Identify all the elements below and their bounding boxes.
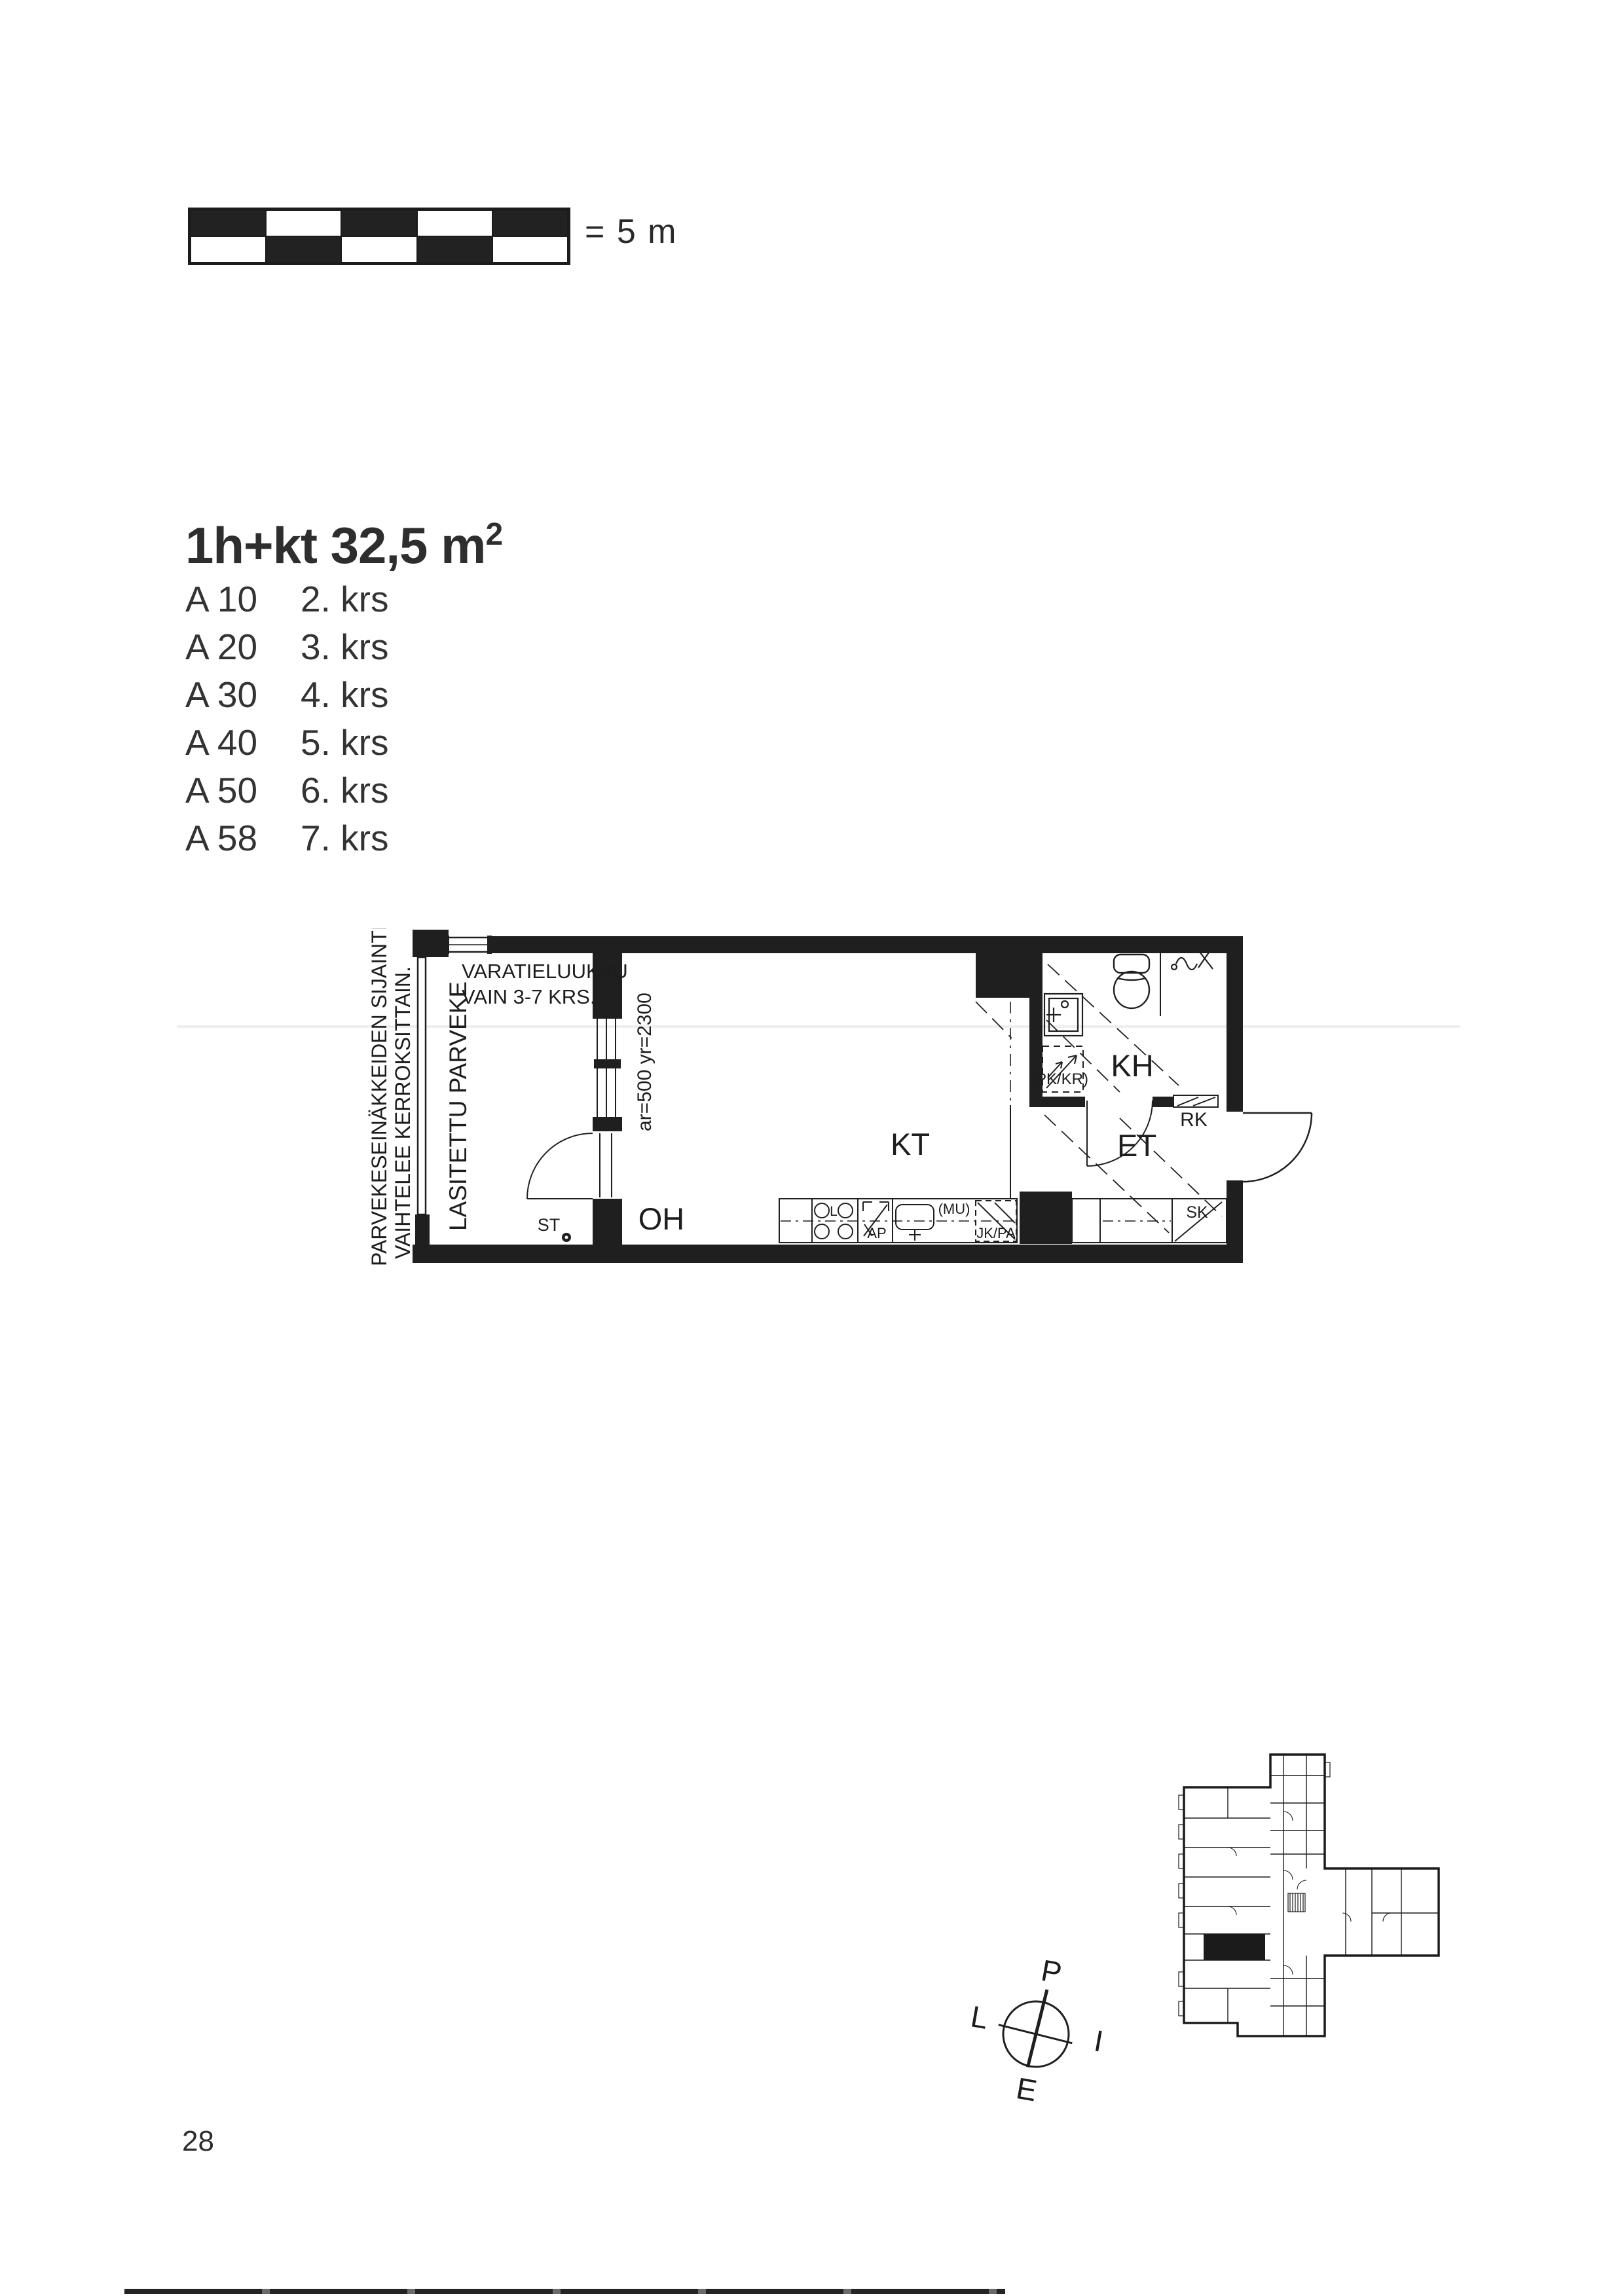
apartment-row: A 50 6. krs [185,766,388,814]
apartment-type-text: 1h+kt 32,5 m [185,517,485,574]
apartment-floor: 3. krs [301,626,388,668]
note-hatch-line1: VARATIELUUKKU [462,960,628,983]
toilet [1114,955,1149,1008]
apartment-row: A 30 4. krs [185,670,388,718]
apartment-floor: 4. krs [301,674,388,716]
scale-cell [492,236,568,263]
square-meter-sup: 2 [485,517,502,552]
apartment-code: A 50 [185,769,301,811]
room-label-oh: OH [638,1201,685,1236]
apartment-row: A 20 3. krs [185,623,388,670]
side-note-line2: VAIHTELEE KERROKSITTAIN. [391,966,415,1259]
apartment-list: A 10 2. krs A 20 3. krs A 30 4. krs A 40… [185,575,388,862]
apartment-row: A 10 2. krs [185,575,388,623]
scale-cell [191,210,266,236]
apartment-floor: 7. krs [301,817,388,859]
apartment-floor: 2. krs [301,578,388,620]
label-pkkr: (PK/KR) [1031,1070,1088,1088]
rk-cabinet [1173,1095,1218,1107]
scale-cell [341,210,416,236]
bathroom-sink [1044,994,1082,1036]
key-plan-dividers [1184,1755,1439,2036]
scale-cell [341,236,416,263]
room-label-kh: KH [1111,1048,1153,1083]
label-sk: SK [1186,1203,1208,1222]
window-dim-label: ar=500 yr=2300 [634,993,655,1131]
scale-cell [266,236,341,263]
window-glazing [597,1019,616,1197]
key-plan-outline [1184,1755,1439,2036]
apartment-floor: 6. krs [301,769,388,811]
scan-artifact-bottom [124,2289,1005,2294]
apartment-code: A 30 [185,674,301,716]
label-ap: AP [867,1225,886,1241]
apartment-code: A 10 [185,578,301,620]
floor-plan: VARATIELUUKKU VAIN 3-7 KRS. LASITETTU PA… [367,928,1323,1287]
scale-cell [417,236,492,263]
note-hatch-line2: VAIN 3-7 KRS. [462,985,595,1008]
balcony-label: LASITETTU PARVEKE [445,981,471,1231]
scale-cell [492,210,568,236]
scale-cell [417,210,492,236]
label-jkpa: JK/PA [976,1225,1016,1241]
scale-cell [266,210,341,236]
label-stove: L [830,1204,838,1219]
apartment-floor: 5. krs [301,721,388,763]
apartment-code: A 40 [185,721,301,763]
shower-icon [1172,951,1213,970]
apartment-code: A 20 [185,626,301,668]
key-plan-stair [1288,1893,1305,1912]
page-number: 28 [182,2125,214,2158]
scale-bar [188,208,570,265]
st-socket [562,1233,571,1242]
apartment-type-title: 1h+kt 32,5 m2 [185,516,502,575]
compass-letter-west: L [969,1999,991,2035]
apartment-code: A 58 [185,817,301,859]
room-label-et: ET [1117,1128,1156,1163]
label-mu: (MU) [938,1201,970,1217]
compass-letter-north: P [1039,1954,1064,1990]
balcony-door [527,1133,593,1199]
side-note-line1: PARVEKESEINÄKKEIDEN SIJAINTI [367,928,391,1266]
compass: P I E L [966,1954,1116,2111]
compass-letter-east: I [1092,2024,1106,2058]
apartment-row: A 58 7. krs [185,814,388,862]
compass-letter-south: E [1014,2071,1039,2108]
apartment-row: A 40 5. krs [185,718,388,766]
building-key-plan [1175,1749,1464,2162]
key-plan-balconies [1179,1762,1330,2016]
key-plan-highlight [1204,1934,1265,1960]
scale-cell [191,236,266,263]
room-label-kt: KT [891,1127,930,1161]
label-rk: RK [1180,1109,1208,1131]
label-st: ST [538,1215,561,1235]
entry-door [1243,1113,1312,1182]
scale-bar-label: = 5 m [585,212,678,251]
